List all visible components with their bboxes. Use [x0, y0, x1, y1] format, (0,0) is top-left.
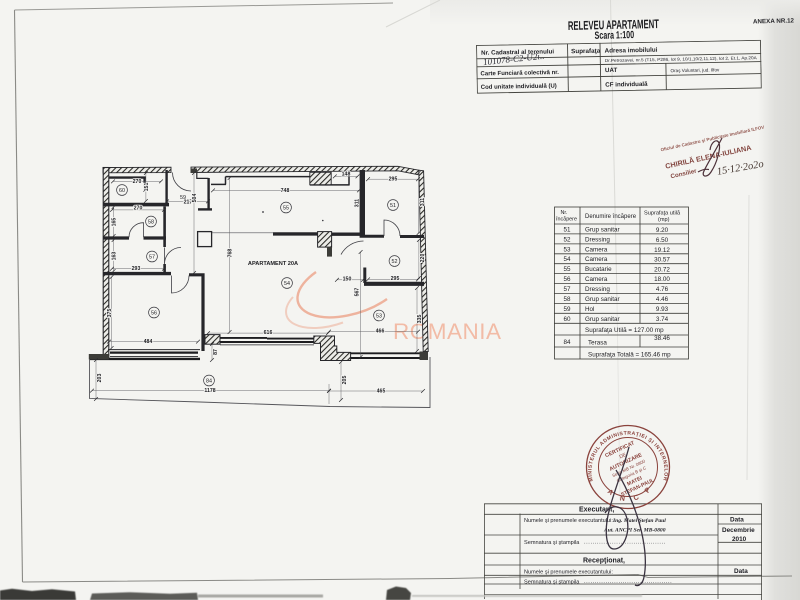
- svg-text:A N C P I: A N C P I: [0, 0, 657, 503]
